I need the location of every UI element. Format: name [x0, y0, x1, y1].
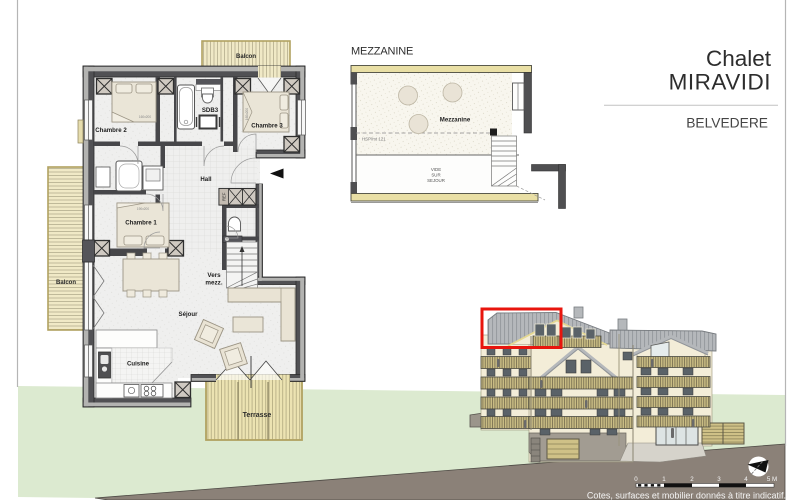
- svg-text:160x200: 160x200: [245, 108, 249, 120]
- svg-text:Hall: Hall: [200, 176, 211, 183]
- svg-text:2: 2: [690, 476, 694, 483]
- svg-text:Cotes, surfaces et mobilier do: Cotes, surfaces et mobilier donnés à tit…: [587, 491, 786, 500]
- svg-text:Séjour: Séjour: [179, 311, 199, 318]
- svg-text:Vers: Vers: [207, 272, 221, 279]
- svg-text:4: 4: [744, 476, 748, 483]
- svg-text:SEJOUR: SEJOUR: [427, 178, 445, 183]
- svg-text:Mezzanine: Mezzanine: [440, 117, 471, 124]
- svg-text:3: 3: [717, 476, 721, 483]
- svg-text:Chambre 3: Chambre 3: [251, 123, 283, 130]
- svg-text:160x200: 160x200: [139, 115, 151, 119]
- svg-text:Balcon: Balcon: [236, 54, 256, 60]
- svg-text:VIDE: VIDE: [431, 167, 441, 172]
- svg-text:Terrasse: Terrasse: [243, 412, 272, 419]
- svg-text:SUR: SUR: [431, 173, 440, 178]
- svg-text:BELVEDERE: BELVEDERE: [686, 116, 768, 131]
- svg-text:SDB3: SDB3: [202, 107, 219, 114]
- svg-text:Chambre 1: Chambre 1: [125, 220, 157, 227]
- svg-text:HSP/mt 121: HSP/mt 121: [362, 137, 386, 142]
- svg-text:190x200: 190x200: [137, 207, 149, 211]
- svg-text:Chambre 2: Chambre 2: [95, 127, 127, 134]
- svg-text:mezz.: mezz.: [205, 280, 222, 287]
- svg-text:Chalet: Chalet: [706, 46, 772, 71]
- svg-text:REF: REF: [222, 192, 227, 201]
- svg-text:Cuisine: Cuisine: [127, 361, 150, 368]
- svg-text:0: 0: [634, 476, 638, 483]
- svg-text:1: 1: [662, 476, 666, 483]
- svg-text:5 M: 5 M: [767, 476, 777, 483]
- svg-text:MIRAVIDI: MIRAVIDI: [669, 70, 771, 95]
- svg-text:Balcon: Balcon: [56, 280, 76, 286]
- svg-text:MEZZANINE: MEZZANINE: [351, 46, 413, 58]
